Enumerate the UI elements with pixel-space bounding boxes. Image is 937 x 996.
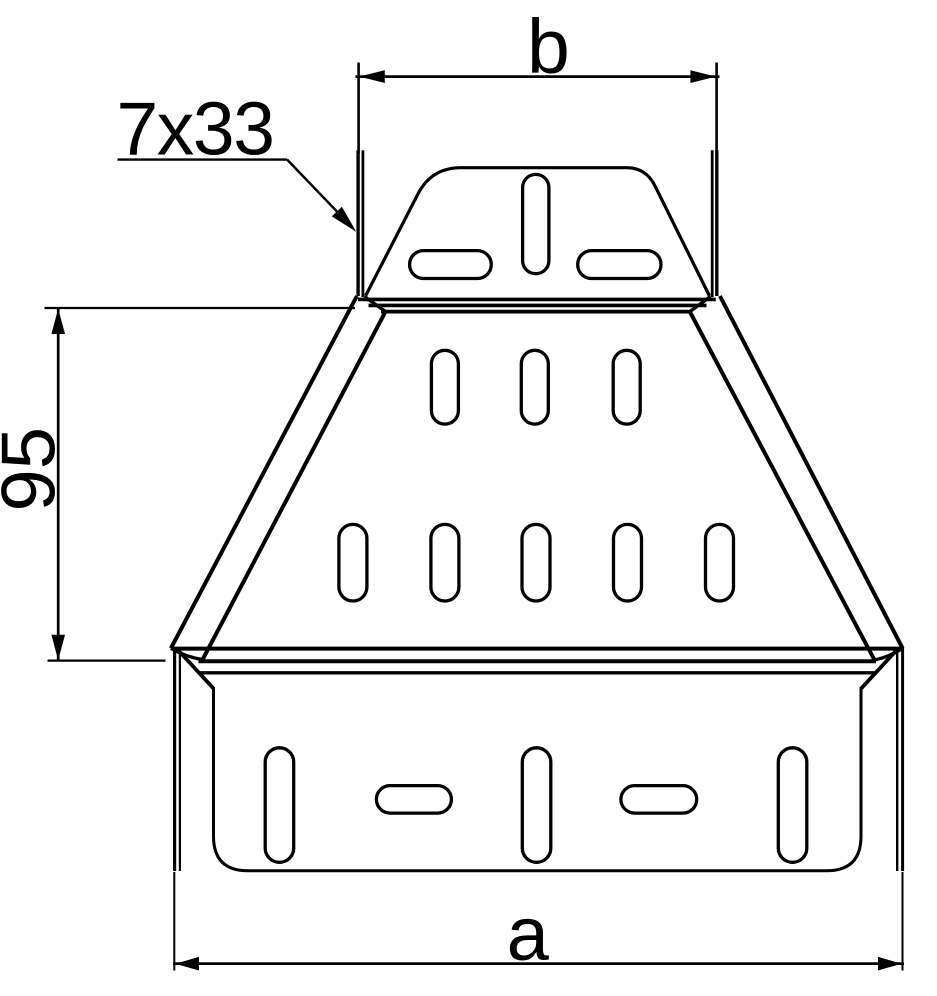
svg-text:b: b	[527, 4, 570, 90]
svg-text:a: a	[507, 892, 550, 977]
svg-text:7x33: 7x33	[117, 87, 274, 171]
svg-text:95: 95	[0, 427, 72, 512]
